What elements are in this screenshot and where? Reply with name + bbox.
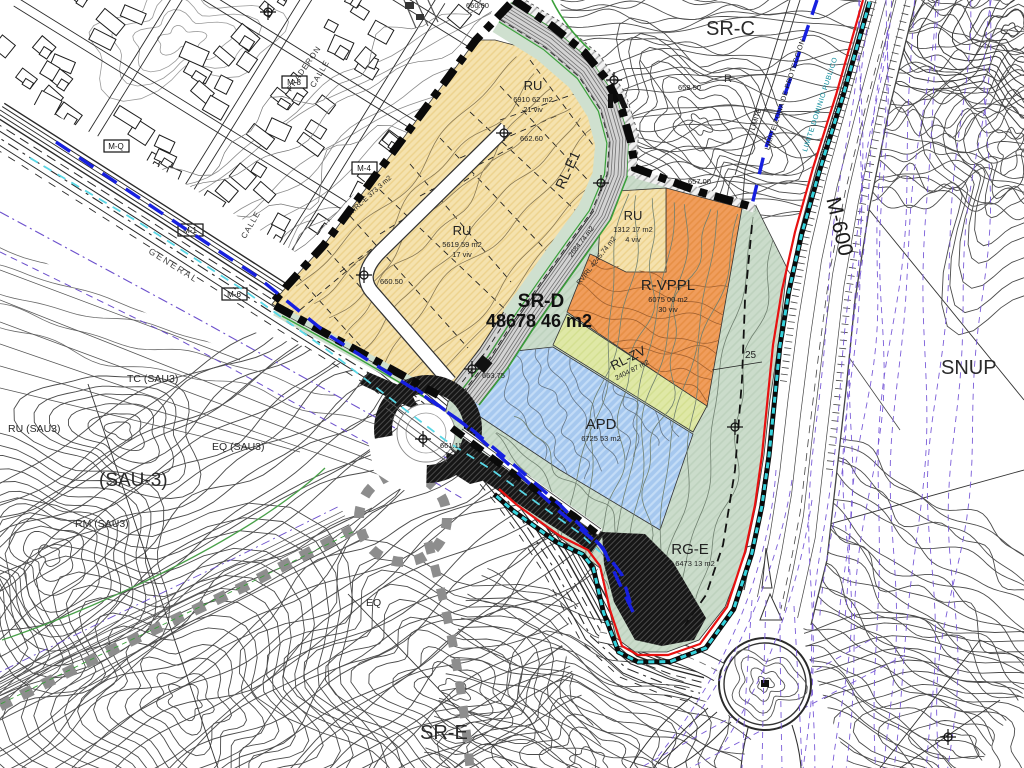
svg-text:R-VPPL: R-VPPL	[641, 277, 695, 294]
svg-text:660.50: 660.50	[380, 277, 403, 286]
svg-text:662.60: 662.60	[520, 134, 543, 143]
svg-text:APD: APD	[586, 416, 617, 433]
svg-text:5619 59 m2: 5619 59 m2	[442, 240, 482, 249]
svg-text:RG-E: RG-E	[671, 541, 709, 558]
svg-text:RU (SAU3): RU (SAU3)	[8, 423, 61, 435]
svg-text:30 viv: 30 viv	[658, 305, 678, 314]
svg-text:M-Q: M-Q	[108, 142, 124, 151]
svg-text:EQ (SAU3): EQ (SAU3)	[212, 441, 265, 453]
svg-text:SR-D: SR-D	[518, 291, 564, 312]
svg-text:RU: RU	[624, 208, 643, 223]
svg-text:6910 62 m2: 6910 62 m2	[513, 95, 553, 104]
svg-text:661.15: 661.15	[440, 441, 463, 450]
svg-text:RU: RU	[453, 223, 472, 238]
svg-text:SR-E: SR-E	[420, 722, 468, 744]
svg-text:6725 53 m2: 6725 53 m2	[581, 434, 621, 443]
svg-text:657.00: 657.00	[688, 177, 711, 186]
svg-text:TC (SAU3): TC (SAU3)	[127, 373, 178, 385]
svg-text:RU: RU	[524, 78, 543, 93]
svg-text:4 viv: 4 viv	[625, 235, 641, 244]
svg-text:R: R	[724, 73, 732, 85]
svg-text:21 viv: 21 viv	[523, 105, 543, 114]
svg-text:EQ: EQ	[366, 597, 381, 609]
svg-text:RM (SAU3): RM (SAU3)	[75, 518, 129, 530]
svg-text:M-4: M-4	[357, 164, 371, 173]
svg-text:660.00: 660.00	[466, 1, 489, 10]
svg-text:17 viv: 17 viv	[452, 250, 472, 259]
svg-text:6075 00 m2: 6075 00 m2	[648, 295, 688, 304]
svg-text:1312 17 m2: 1312 17 m2	[613, 225, 653, 234]
svg-text:SNUP: SNUP	[941, 357, 997, 379]
svg-text:658.50: 658.50	[678, 83, 701, 92]
svg-text:48678 46 m2: 48678 46 m2	[486, 311, 592, 331]
svg-text:6473 13 m2: 6473 13 m2	[675, 559, 715, 568]
svg-text:663.75: 663.75	[482, 371, 505, 380]
svg-text:25: 25	[745, 350, 757, 361]
svg-text:SR-C: SR-C	[706, 18, 755, 40]
svg-text:(SAU-3): (SAU-3)	[99, 470, 168, 491]
